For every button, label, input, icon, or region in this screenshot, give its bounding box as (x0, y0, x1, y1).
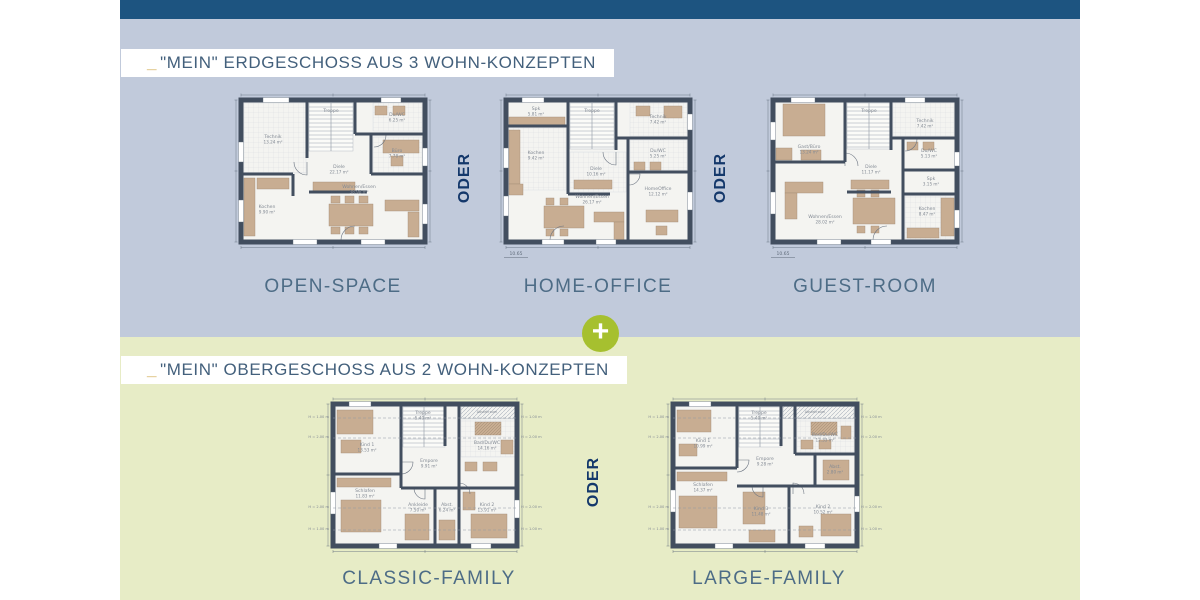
plan-card-large-family[interactable]: Kind 110.99 m²Treppe5.40 m²Bad/Du/WC12.3… (635, 396, 903, 568)
svg-text:Abstellraum: Abstellraum (805, 410, 826, 414)
svg-text:26.17 m²: 26.17 m² (582, 200, 601, 205)
page: _ "MEIN" ERDGESCHOSS AUS 3 WOHN-KONZEPTE… (0, 0, 1200, 600)
svg-text:12.33 m²: 12.33 m² (815, 438, 834, 443)
svg-text:5.25 m²: 5.25 m² (650, 154, 667, 159)
svg-text:3.15 m²: 3.15 m² (923, 182, 940, 187)
svg-text:Abstellraum: Abstellraum (477, 410, 498, 414)
svg-text:13.24 m²: 13.24 m² (263, 140, 282, 145)
oder-separator-3: ODER (585, 447, 605, 517)
svg-text:5.13 m²: 5.13 m² (921, 154, 938, 159)
plan-card-home-office[interactable]: Spk5.81 m²TreppeTechnik7.42 m²Kochen9.42… (498, 92, 698, 264)
svg-text:H = 1.00 m: H = 1.00 m (308, 415, 329, 419)
svg-text:22.17 m²: 22.17 m² (329, 170, 348, 175)
svg-text:H = 2.00 m: H = 2.00 m (308, 435, 329, 439)
svg-text:H = 2.00 m: H = 2.00 m (861, 435, 882, 439)
floor-plan-home-office-drawing: Spk5.81 m²TreppeTechnik7.42 m²Kochen9.42… (498, 92, 698, 264)
svg-text:H = 2.00 m: H = 2.00 m (648, 435, 669, 439)
svg-text:H = 2.00 m: H = 2.00 m (521, 435, 542, 439)
svg-text:38.98 m²: 38.98 m² (349, 190, 368, 195)
svg-text:6.25 m²: 6.25 m² (389, 118, 406, 123)
svg-text:H = 1.00 m: H = 1.00 m (861, 527, 882, 531)
floor-plan-open-space-drawing: Technik13.24 m²TreppeDu/WC6.25 m²Diele22… (233, 92, 433, 264)
svg-text:5.81 m²: 5.81 m² (528, 112, 545, 117)
svg-text:11.83 m²: 11.83 m² (355, 494, 374, 499)
svg-text:6.24 m²: 6.24 m² (439, 508, 456, 513)
svg-text:7.42 m²: 7.42 m² (917, 124, 934, 129)
top-banner (120, 0, 1080, 19)
svg-text:10.16 m²: 10.16 m² (586, 172, 605, 177)
svg-text:7.50 m²: 7.50 m² (410, 508, 427, 513)
plan-caption-open-space: OPEN-SPACE (233, 276, 433, 298)
svg-text:14.37 m²: 14.37 m² (693, 488, 712, 493)
svg-text:Treppe: Treppe (322, 108, 339, 114)
svg-text:H = 1.00 m: H = 1.00 m (648, 415, 669, 419)
svg-text:13.91 m²: 13.91 m² (477, 508, 496, 513)
heading-text: "MEIN" OBERGESCHOSS AUS 2 WOHN-KONZEPTEN (160, 360, 609, 380)
floor-plan-large-family-drawing: Kind 110.99 m²Treppe5.40 m²Bad/Du/WC12.3… (635, 396, 903, 568)
svg-text:10.65: 10.65 (777, 251, 790, 257)
svg-text:8.47 m²: 8.47 m² (919, 212, 936, 217)
svg-text:H = 2.00 m: H = 2.00 m (521, 505, 542, 509)
plan-card-open-space[interactable]: Technik13.24 m²TreppeDu/WC6.25 m²Diele22… (233, 92, 433, 264)
svg-text:H = 1.00 m: H = 1.00 m (521, 415, 542, 419)
plan-card-classic-family[interactable]: Kind 113.53 m²Treppe5.40 m²Bad/Du/WC14.1… (295, 396, 563, 568)
svg-text:H = 2.00 m: H = 2.00 m (308, 505, 329, 509)
svg-text:H = 2.00 m: H = 2.00 m (648, 505, 669, 509)
svg-text:H = 1.00 m: H = 1.00 m (648, 527, 669, 531)
plus-icon: + (582, 315, 619, 352)
svg-text:Treppe: Treppe (860, 108, 877, 114)
svg-text:Treppe: Treppe (583, 108, 600, 114)
heading-prefix: _ (147, 53, 157, 73)
svg-text:9.42 m²: 9.42 m² (528, 156, 545, 161)
floor-plan-classic-family-drawing: Kind 113.53 m²Treppe5.40 m²Bad/Du/WC14.1… (295, 396, 563, 568)
svg-text:H = 1.00 m: H = 1.00 m (861, 415, 882, 419)
svg-text:13.24 m²: 13.24 m² (799, 150, 818, 155)
svg-text:2.80 m²: 2.80 m² (827, 470, 844, 475)
svg-text:9.28 m²: 9.28 m² (757, 462, 774, 467)
svg-text:10.99 m²: 10.99 m² (693, 444, 712, 449)
svg-text:9.91 m²: 9.91 m² (421, 464, 438, 469)
svg-text:H = 2.00 m: H = 2.00 m (861, 505, 882, 509)
svg-text:11.17 m²: 11.17 m² (861, 170, 880, 175)
svg-text:11.48 m²: 11.48 m² (751, 512, 770, 517)
svg-text:13.53 m²: 13.53 m² (357, 448, 376, 453)
svg-text:9.90 m²: 9.90 m² (259, 210, 276, 215)
plan-caption-home-office: HOME-OFFICE (498, 276, 698, 298)
svg-text:10.52 m²: 10.52 m² (813, 510, 832, 515)
oder-separator-1: ODER (456, 143, 476, 213)
heading-prefix: _ (147, 360, 157, 380)
plan-caption-guest-room: GUEST-ROOM (765, 276, 965, 298)
plan-card-guest-room[interactable]: Gast/Büro13.24 m²TreppeTechnik7.42 m²Die… (765, 92, 965, 264)
svg-text:H = 1.00 m: H = 1.00 m (521, 527, 542, 531)
floor-plan-guest-room-drawing: Gast/Büro13.24 m²TreppeTechnik7.42 m²Die… (765, 92, 965, 264)
plan-caption-large-family: LARGE-FAMILY (635, 568, 903, 590)
svg-text:5.40 m²: 5.40 m² (415, 416, 432, 421)
oder-separator-2: ODER (712, 143, 732, 213)
svg-text:7.42 m²: 7.42 m² (650, 120, 667, 125)
obergeschoss-heading: _ "MEIN" OBERGESCHOSS AUS 2 WOHN-KONZEPT… (121, 356, 627, 384)
svg-text:H = 1.00 m: H = 1.00 m (308, 527, 329, 531)
svg-text:5.40 m²: 5.40 m² (751, 416, 768, 421)
svg-text:7.78 m²: 7.78 m² (389, 154, 406, 159)
svg-text:10.65: 10.65 (510, 251, 523, 257)
svg-text:28.02 m²: 28.02 m² (815, 220, 834, 225)
erdgeschoss-heading: _ "MEIN" ERDGESCHOSS AUS 3 WOHN-KONZEPTE… (121, 49, 614, 77)
plan-caption-classic-family: CLASSIC-FAMILY (295, 568, 563, 590)
svg-text:14.16 m²: 14.16 m² (477, 446, 496, 451)
heading-text: "MEIN" ERDGESCHOSS AUS 3 WOHN-KONZEPTEN (160, 53, 596, 73)
svg-text:12.12 m²: 12.12 m² (648, 192, 667, 197)
